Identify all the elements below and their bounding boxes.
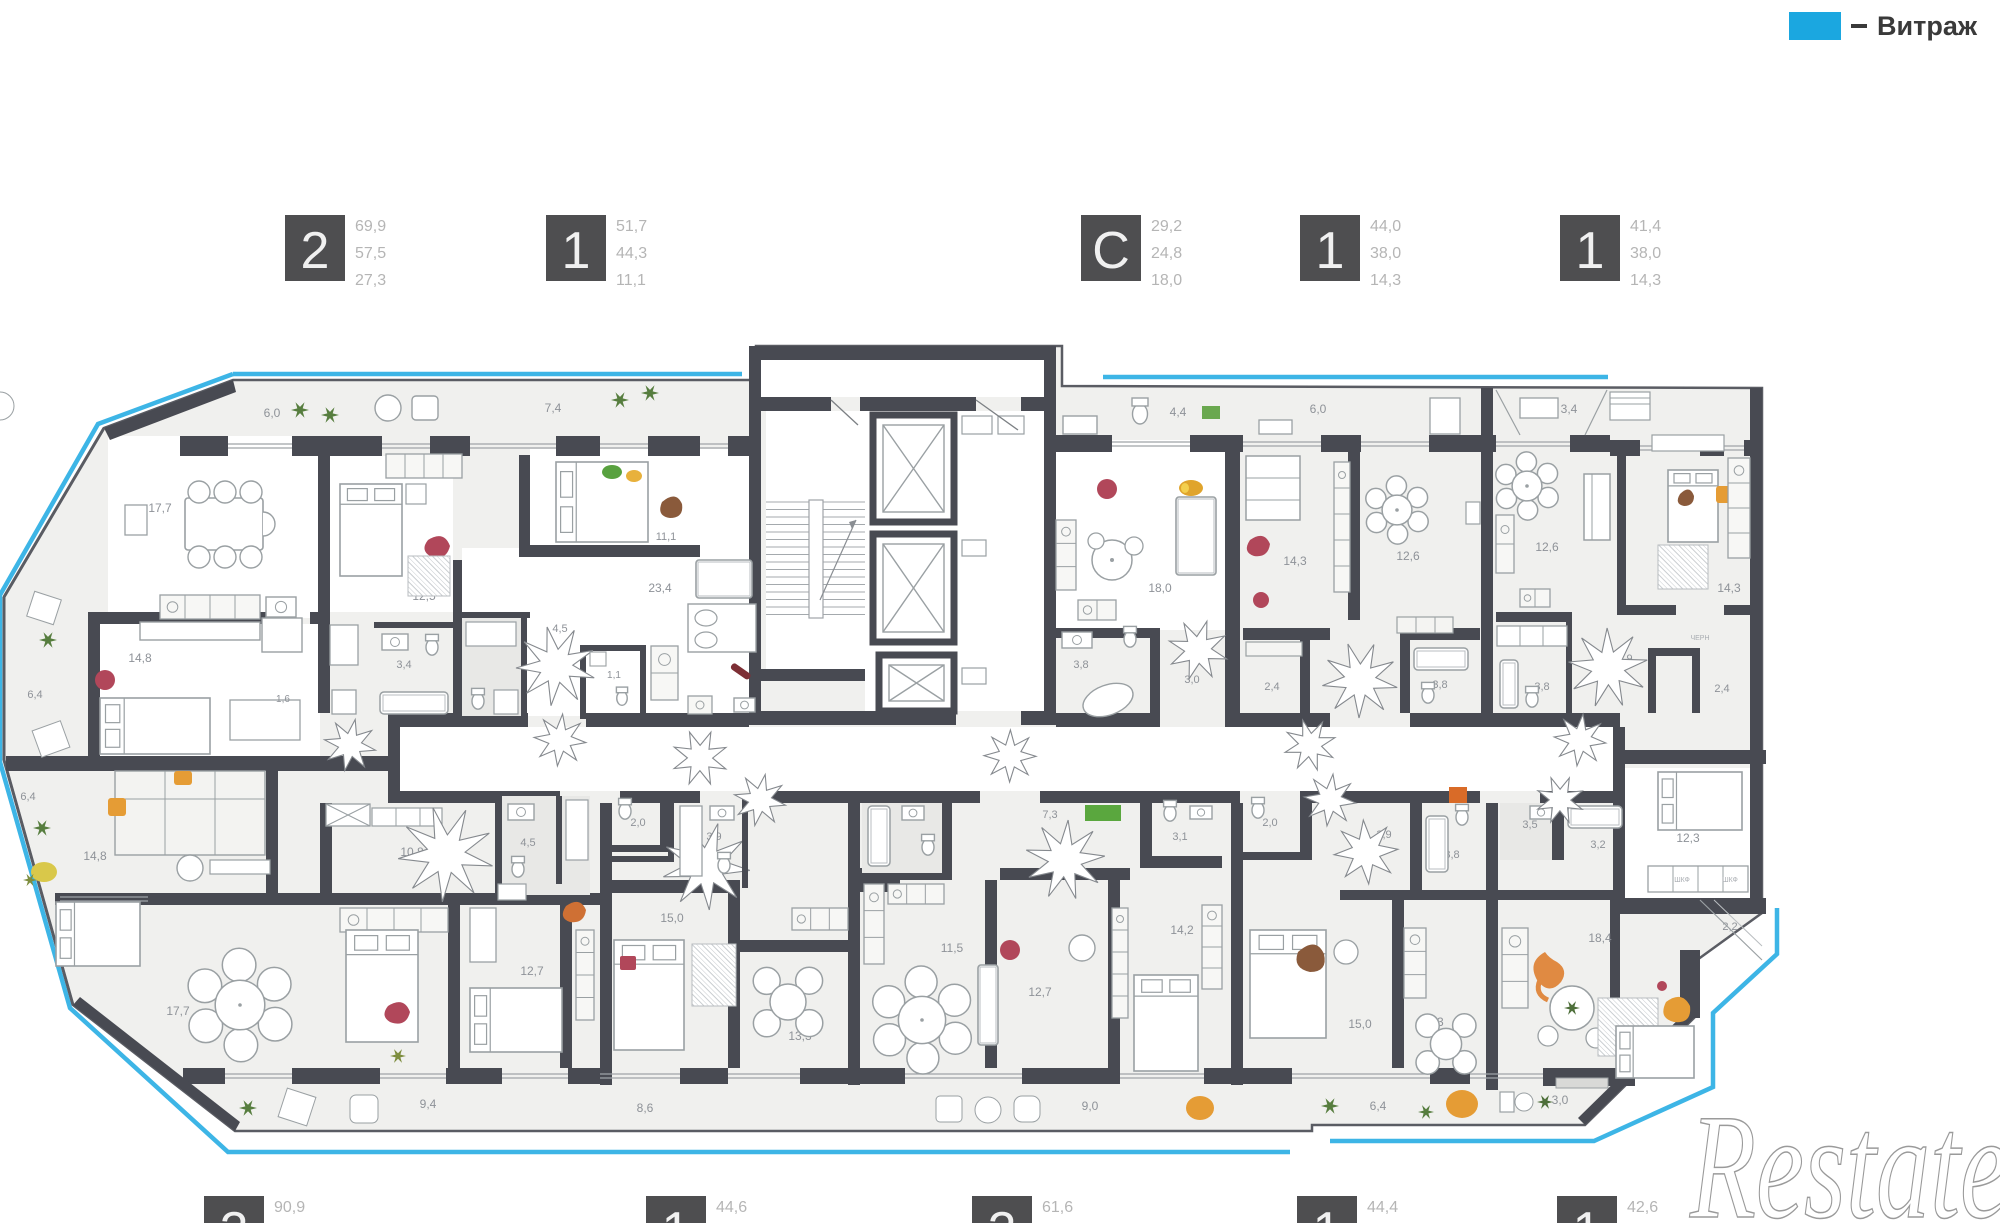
svg-text:2,4: 2,4 xyxy=(1714,683,1729,695)
svg-text:3,2: 3,2 xyxy=(1590,839,1605,851)
svg-text:44,0: 44,0 xyxy=(1370,218,1401,235)
svg-text:15,0: 15,0 xyxy=(660,911,684,925)
svg-text:1: 1 xyxy=(662,1202,691,1223)
svg-text:2,4: 2,4 xyxy=(1264,681,1279,693)
svg-text:44,4: 44,4 xyxy=(1367,1199,1398,1216)
svg-text:3,8: 3,8 xyxy=(1073,659,1088,671)
svg-text:3,0: 3,0 xyxy=(1552,1093,1569,1107)
svg-text:12,7: 12,7 xyxy=(520,964,544,978)
svg-text:2: 2 xyxy=(301,222,330,280)
svg-text:42,6: 42,6 xyxy=(1627,1199,1658,1216)
svg-text:90,9: 90,9 xyxy=(274,1199,305,1216)
svg-text:14,3: 14,3 xyxy=(1370,272,1401,289)
svg-text:1: 1 xyxy=(1576,222,1605,280)
svg-text:2,0: 2,0 xyxy=(630,817,645,829)
svg-text:3,1: 3,1 xyxy=(1172,831,1187,843)
svg-text:24,8: 24,8 xyxy=(1151,245,1182,262)
svg-text:6,0: 6,0 xyxy=(264,406,281,420)
svg-text:14,8: 14,8 xyxy=(128,651,152,665)
svg-text:6,4: 6,4 xyxy=(20,791,35,803)
svg-text:12,6: 12,6 xyxy=(1396,549,1420,563)
svg-text:14,3: 14,3 xyxy=(1283,554,1307,568)
svg-text:7,4: 7,4 xyxy=(545,401,562,415)
svg-text:9,0: 9,0 xyxy=(1082,1099,1099,1113)
svg-text:1,1: 1,1 xyxy=(607,670,621,681)
svg-text:14,3: 14,3 xyxy=(1630,272,1661,289)
svg-text:14,3: 14,3 xyxy=(1717,581,1741,595)
svg-text:18,0: 18,0 xyxy=(1148,581,1172,595)
svg-text:1: 1 xyxy=(1313,1202,1342,1223)
svg-text:1: 1 xyxy=(1316,222,1345,280)
svg-text:8,6: 8,6 xyxy=(637,1101,654,1115)
svg-text:C: C xyxy=(1092,222,1130,280)
svg-text:27,3: 27,3 xyxy=(355,272,386,289)
svg-text:1: 1 xyxy=(1573,1202,1602,1223)
svg-text:38,0: 38,0 xyxy=(1370,245,1401,262)
svg-text:7,3: 7,3 xyxy=(1042,809,1057,821)
svg-text:12,6: 12,6 xyxy=(1535,540,1559,554)
svg-text:18,0: 18,0 xyxy=(1151,272,1182,289)
svg-text:38,0: 38,0 xyxy=(1630,245,1661,262)
svg-text:2: 2 xyxy=(220,1202,249,1223)
svg-text:2,2: 2,2 xyxy=(1722,921,1737,933)
svg-text:18,4: 18,4 xyxy=(1588,931,1612,945)
svg-text:1,6: 1,6 xyxy=(276,694,290,705)
svg-text:17,7: 17,7 xyxy=(166,1004,190,1018)
svg-text:4,4: 4,4 xyxy=(1170,405,1187,419)
svg-text:23,4: 23,4 xyxy=(648,581,672,595)
svg-text:2: 2 xyxy=(988,1202,1017,1223)
svg-text:3,0: 3,0 xyxy=(1184,674,1199,686)
svg-text:44,6: 44,6 xyxy=(716,1199,747,1216)
svg-text:15,0: 15,0 xyxy=(1348,1017,1372,1031)
svg-text:3,4: 3,4 xyxy=(1561,402,1578,416)
svg-text:3,4: 3,4 xyxy=(396,659,411,671)
svg-text:61,6: 61,6 xyxy=(1042,1199,1073,1216)
svg-text:11,1: 11,1 xyxy=(656,531,677,543)
svg-text:2,0: 2,0 xyxy=(1262,817,1277,829)
svg-text:1: 1 xyxy=(562,222,591,280)
svg-text:17,7: 17,7 xyxy=(148,501,172,515)
svg-text:Restate: Restate xyxy=(1689,1084,2000,1223)
svg-text:51,7: 51,7 xyxy=(616,218,647,235)
svg-text:44,3: 44,3 xyxy=(616,245,647,262)
svg-text:9,4: 9,4 xyxy=(420,1097,437,1111)
svg-text:69,9: 69,9 xyxy=(355,218,386,235)
svg-text:6,4: 6,4 xyxy=(1370,1099,1387,1113)
svg-text:ЧЕРН: ЧЕРН xyxy=(1690,635,1709,642)
svg-text:12,3: 12,3 xyxy=(1676,831,1700,845)
svg-text:4,5: 4,5 xyxy=(520,837,535,849)
svg-text:ШКФ: ШКФ xyxy=(1722,877,1738,884)
svg-text:3,5: 3,5 xyxy=(1522,819,1537,831)
svg-text:ШКФ: ШКФ xyxy=(1674,877,1690,884)
svg-text:12,7: 12,7 xyxy=(1028,985,1052,999)
svg-text:57,5: 57,5 xyxy=(355,245,386,262)
svg-text:11,5: 11,5 xyxy=(941,941,964,955)
svg-text:14,2: 14,2 xyxy=(1170,923,1194,937)
svg-text:11,1: 11,1 xyxy=(616,272,646,289)
svg-text:14,8: 14,8 xyxy=(83,849,107,863)
svg-text:6,0: 6,0 xyxy=(1310,402,1327,416)
svg-text:6,4: 6,4 xyxy=(27,689,42,701)
svg-text:Витраж: Витраж xyxy=(1877,11,1978,41)
svg-text:29,2: 29,2 xyxy=(1151,218,1182,235)
svg-text:4,5: 4,5 xyxy=(552,623,567,635)
svg-text:41,4: 41,4 xyxy=(1630,218,1661,235)
